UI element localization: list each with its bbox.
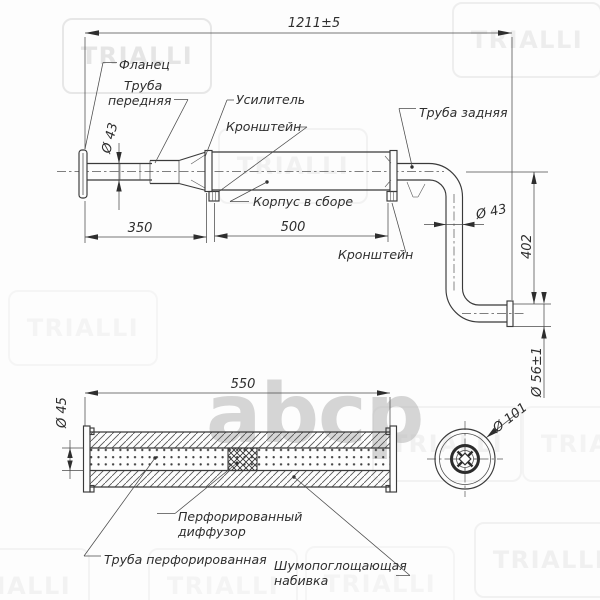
front-pipe-diameter-dimension: Ø 43: [99, 121, 122, 210]
rear-bracket-shape: [387, 192, 397, 202]
stuffing-bottom-band: [90, 471, 390, 488]
front-bracket-label-group: Кронштейн: [219, 119, 307, 192]
body-assembly-label: Корпус в сборе: [253, 194, 353, 209]
diffuser-label: Перфорированный: [178, 509, 302, 524]
tip-diameter-value: Ø 56±1: [530, 347, 545, 398]
shell-length-value: 550: [231, 377, 256, 392]
flange-label: Фланец: [119, 57, 170, 72]
front-pipe-label: Труба: [124, 78, 162, 93]
shell-diameter-dimension: Ø 101: [487, 400, 531, 437]
front-length-dimension: 350: [85, 193, 207, 243]
rear-pipe-diameter-dimension: Ø 43: [424, 202, 508, 227]
flange-shape: [79, 150, 87, 198]
stuffing-label: Шумопоглощающая: [274, 558, 407, 573]
body-assembly-label-group: Корпус в сборе: [230, 180, 353, 209]
diffuser-label: диффузор: [177, 524, 246, 539]
shell-length-dimension: 550: [85, 377, 390, 431]
right-end-cap: [390, 426, 397, 492]
overall-length-value: 1211±5: [288, 16, 340, 31]
front-pipe-label-group: Труба передняя: [108, 78, 188, 163]
section-view-drawing: 550: [55, 377, 410, 588]
perforated-pipe-label: Труба перфорированная: [104, 552, 267, 567]
technical-drawing-page: TRIALLI TRIALLI TRIALLI TRIALLI TRIALLI …: [0, 0, 600, 600]
front-pipe-label: передняя: [108, 93, 172, 108]
end-view-drawing: Ø 101: [427, 400, 530, 497]
rear-bracket-label-group: Кронштейн: [338, 203, 413, 262]
muffler-body-shape: [205, 151, 397, 192]
rear-pipe-shape: [397, 164, 524, 327]
left-end-cap: [84, 426, 91, 492]
body-length-value: 500: [281, 220, 306, 235]
tip-diameter-dimension: Ø 56±1: [513, 292, 551, 398]
pipe-diameter-dimension: Ø 45: [55, 397, 84, 479]
exhaust-system-drawing: 1211±5: [0, 0, 600, 600]
rear-pipe-label: Труба задняя: [419, 105, 508, 120]
reinforcement-label: Усилитель: [236, 92, 305, 107]
pipe-diameter-value: Ø 45: [55, 397, 70, 429]
drop-height-dimension: 402: [466, 172, 551, 304]
rear-bracket-label: Кронштейн: [338, 247, 413, 262]
front-bracket-label: Кронштейн: [226, 119, 301, 134]
stuffing-label: набивка: [274, 573, 328, 588]
front-bracket-shape: [209, 192, 219, 202]
drop-height-value: 402: [520, 234, 535, 259]
muffler-section-shape: [84, 426, 397, 492]
front-pipe-diameter-value: Ø 43: [99, 121, 121, 156]
stuffing-top-band: [90, 432, 390, 448]
shell-diameter-value: Ø 101: [489, 400, 530, 437]
front-length-value: 350: [128, 221, 153, 236]
rear-pipe-label-group: Труба задняя: [399, 105, 508, 169]
side-view-drawing: 1211±5: [57, 16, 551, 398]
rear-pipe-diameter-value: Ø 43: [474, 202, 508, 223]
